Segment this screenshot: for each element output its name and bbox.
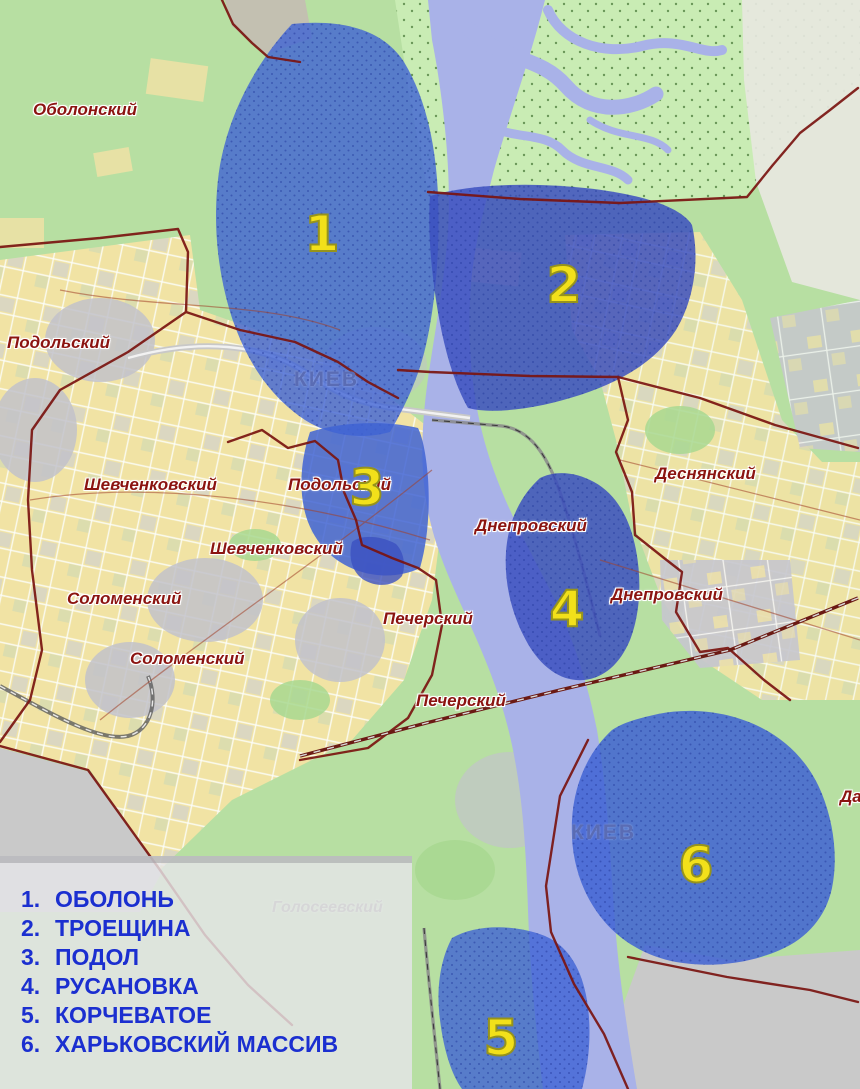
district-label-solomensky-2: Соломенский xyxy=(130,649,245,669)
zone-marker-4: 4 xyxy=(550,584,585,634)
legend-item-label: ОБОЛОНЬ xyxy=(55,886,174,912)
legend-item-number: 4. xyxy=(21,972,55,1001)
legend-item-obolon: 1.ОБОЛОНЬ xyxy=(21,885,412,914)
legend-item-podol: 3.ПОДОЛ xyxy=(21,943,412,972)
legend-item-label: РУСАНОВКА xyxy=(55,973,199,999)
legend-item-number: 6. xyxy=(21,1030,55,1059)
legend-item-label: ТРОЕЩИНА xyxy=(55,915,191,941)
legend-item-label: ПОДОЛ xyxy=(55,944,139,970)
legend-list: 1.ОБОЛОНЬ 2.ТРОЕЩИНА 3.ПОДОЛ 4.РУСАНОВКА… xyxy=(21,885,412,1059)
district-label-desnyansky: Деснянский xyxy=(655,464,756,484)
gray-area-southeast xyxy=(605,945,860,1089)
district-label-obolonsky: Оболонский xyxy=(33,100,137,120)
zone-marker-6: 6 xyxy=(679,840,714,890)
district-label-solomensky-1: Соломенский xyxy=(67,589,182,609)
legend-item-number: 5. xyxy=(21,1001,55,1030)
city-label-kiev-south: КИЕВ xyxy=(571,821,636,845)
zone-marker-5: 5 xyxy=(484,1013,519,1063)
district-label-pechersky-2: Печерский xyxy=(416,691,506,711)
district-label-dneprovsky-2: Днепровский xyxy=(611,585,723,605)
legend-panel: 1.ОБОЛОНЬ 2.ТРОЕЩИНА 3.ПОДОЛ 4.РУСАНОВКА… xyxy=(0,856,412,1089)
zone-marker-3: 3 xyxy=(350,463,385,513)
district-label-darnitsky-partial: Да xyxy=(840,787,860,807)
legend-item-number: 1. xyxy=(21,885,55,914)
legend-item-korchevatoe: 5.КОРЧЕВАТОЕ xyxy=(21,1001,412,1030)
legend-item-number: 3. xyxy=(21,943,55,972)
legend-item-label: КОРЧЕВАТОЕ xyxy=(55,1002,211,1028)
district-label-podolsky-1: Подольский xyxy=(7,333,110,353)
legend-item-troeschina: 2.ТРОЕЩИНА xyxy=(21,914,412,943)
district-label-pechersky-1: Печерский xyxy=(383,609,473,629)
legend-item-kharkovsky-massiv: 6.ХАРЬКОВСКИЙ МАССИВ xyxy=(21,1030,412,1059)
zone-marker-2: 2 xyxy=(547,260,582,310)
district-label-dneprovsky-1: Днепровский xyxy=(475,516,587,536)
district-label-shevchenkovsky-1: Шевченковский xyxy=(84,475,217,495)
city-label-kiev-north: КИЕВ xyxy=(294,368,359,392)
district-label-shevchenkovsky-2: Шевченковский xyxy=(210,539,343,559)
kyiv-flood-map: Оболонский Подольский Шевченковский Подо… xyxy=(0,0,860,1089)
zone-marker-1: 1 xyxy=(305,209,340,259)
legend-item-number: 2. xyxy=(21,914,55,943)
legend-item-rusanovka: 4.РУСАНОВКА xyxy=(21,972,412,1001)
legend-item-label: ХАРЬКОВСКИЙ МАССИВ xyxy=(55,1031,338,1057)
